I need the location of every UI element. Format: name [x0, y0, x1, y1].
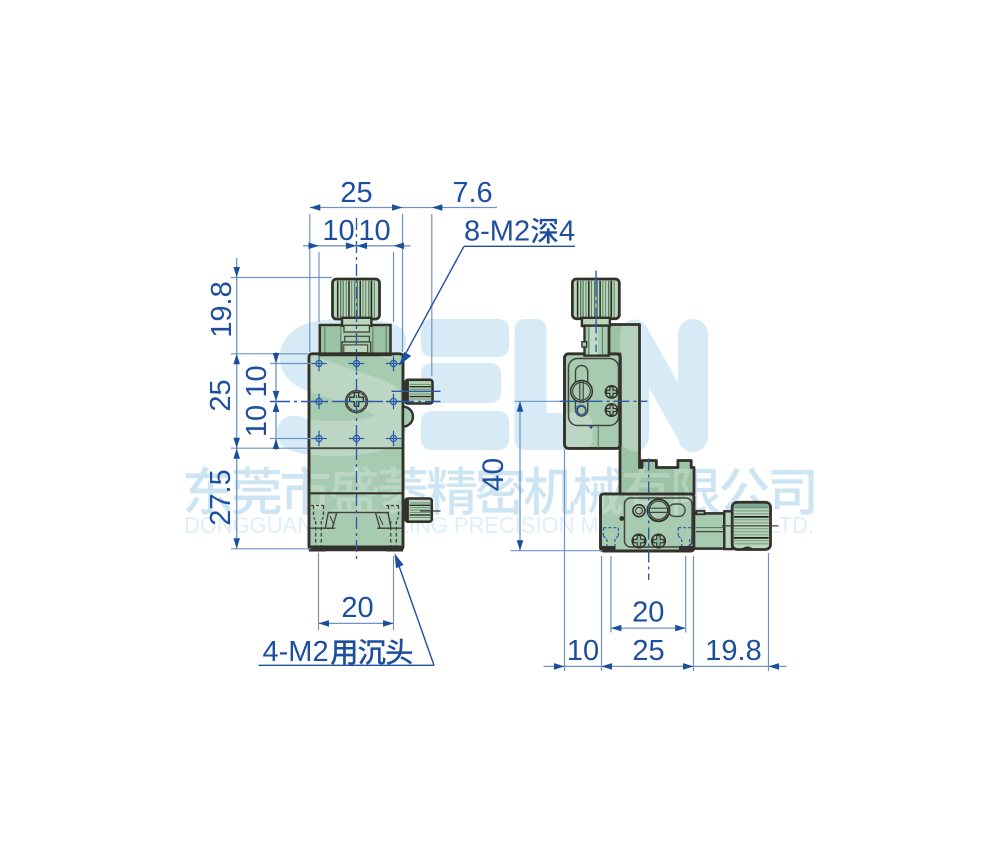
svg-text:25: 25 [340, 177, 372, 209]
svg-text:25: 25 [205, 379, 237, 411]
svg-text:4-M2: 4-M2 [263, 636, 329, 668]
svg-text:10: 10 [358, 215, 390, 247]
svg-text:10: 10 [241, 365, 273, 397]
svg-text:25: 25 [632, 635, 664, 667]
svg-text:7.6: 7.6 [452, 177, 492, 209]
svg-text:8-M2: 8-M2 [464, 216, 530, 248]
svg-text:10: 10 [567, 635, 599, 667]
svg-text:20: 20 [341, 592, 373, 624]
svg-text:19.8: 19.8 [206, 281, 238, 337]
svg-text:10: 10 [241, 405, 273, 437]
svg-text:4: 4 [559, 216, 575, 248]
svg-text:20: 20 [632, 597, 664, 629]
svg-text:10: 10 [322, 215, 354, 247]
svg-text:19.8: 19.8 [705, 635, 761, 667]
svg-text:27.5: 27.5 [205, 469, 237, 525]
svg-text:40: 40 [477, 458, 510, 491]
